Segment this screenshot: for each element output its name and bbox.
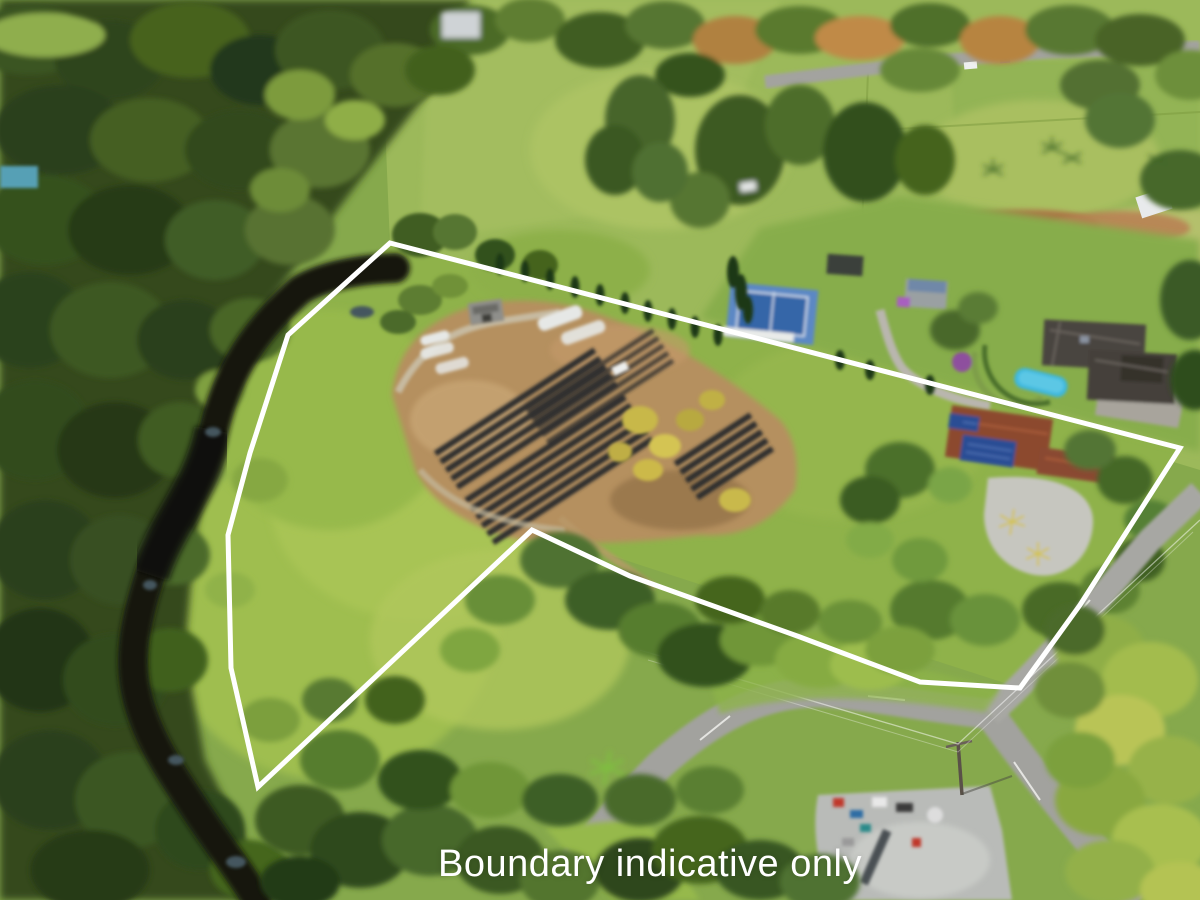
skylight <box>1080 336 1089 343</box>
aerial-photo: Boundary indicative only <box>0 0 1200 900</box>
dark-carport <box>826 254 863 276</box>
purple-tree <box>952 352 972 372</box>
blue-roof-shed <box>0 166 38 188</box>
nursery-shed <box>468 299 505 326</box>
purple-item <box>897 297 911 308</box>
white-building <box>442 12 480 38</box>
garage-roof <box>1120 355 1163 383</box>
boundary-caption: Boundary indicative only <box>438 843 862 886</box>
vehicle <box>964 61 978 69</box>
aerial-scene <box>0 0 1200 900</box>
